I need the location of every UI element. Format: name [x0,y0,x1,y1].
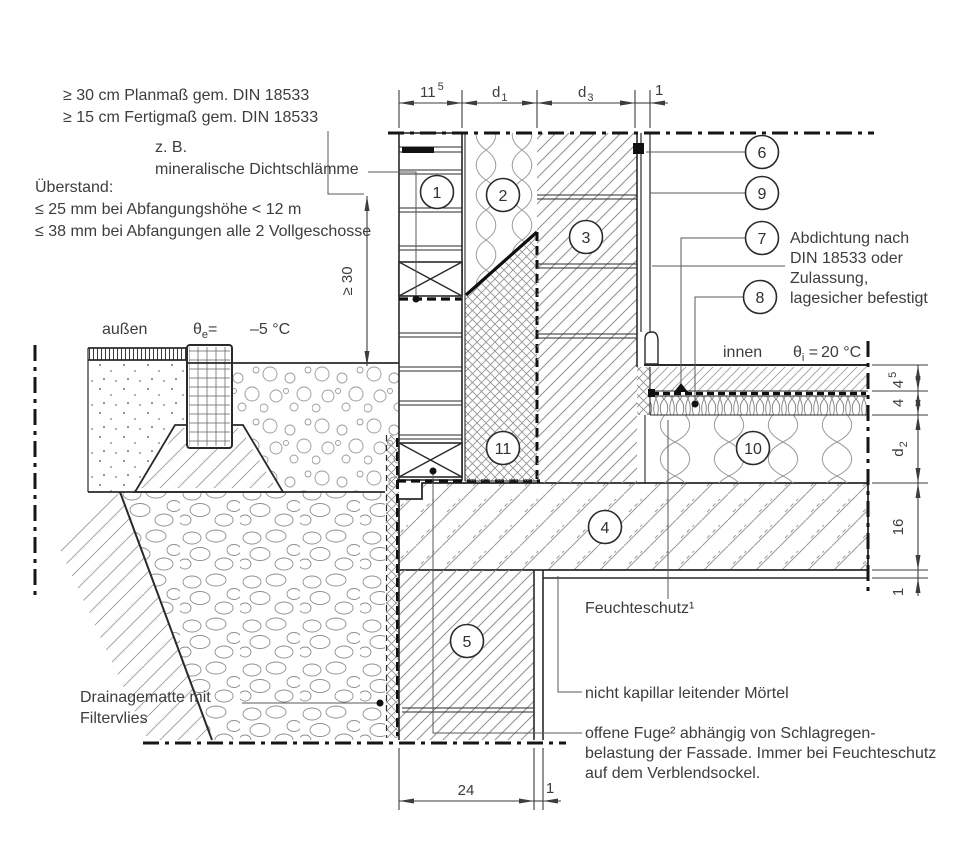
skirting-board [645,332,658,364]
callout7-leader [681,238,745,384]
callout-2: 2 [487,179,520,212]
dimension-top: 115 d1 d3 1 [399,81,668,128]
wall-masonry [537,133,637,483]
callout-7: 7 [746,222,779,255]
callout-6-num: 6 [758,145,767,162]
callout-11: 11 [487,432,520,465]
callout-9: 9 [746,177,779,210]
dim-right-label-2: 4 [890,399,907,407]
note-planmass-2: ≥ 15 cm Fertigmaß gem. DIN 18533 [63,109,318,126]
loadbearing-wall [537,133,658,483]
callout-1: 1 [421,176,454,209]
note-abdichtung-4: lagesicher befestigt [790,290,928,307]
dim-right-label-4: 16 [890,519,907,536]
note-drainage-2: Filtervlies [80,710,148,727]
dim-top-label-3: d3 [578,84,593,104]
callout-5-num: 5 [463,634,472,651]
callout-5: 5 [451,625,484,658]
callout-8-num: 8 [756,290,765,307]
dim-top-label-1: 115 [420,81,444,101]
temp-outside: außenθe=–5 °C [102,321,290,341]
note-drainage-1: Drainagematte mit [80,689,211,706]
note-abdichtung-1: Abdichtung nach [790,230,909,247]
surface-hash-strip [88,348,187,360]
detail-section-svg: 115 d1 d3 1 45 4 d2 16 1 24 1 ≥ 30 [0,0,960,841]
concrete-slab [399,483,868,570]
dim-bottom-label-1: 24 [458,782,475,799]
note-offene-fuge-2: belastung der Fassade. Immer bei Feuchte… [585,745,936,762]
interior-plaster-lines [641,133,650,332]
callout-1-num: 1 [433,185,442,202]
callout-10-num: 10 [744,441,762,458]
seal-floor-corner [648,389,655,397]
dim-bottom-label-2: 1 [546,780,554,797]
seal-top-block [633,143,644,154]
note-ueberstand-2: ≤ 25 mm bei Abfangungshöhe < 12 m [35,201,301,218]
dimension-bottom: 24 1 [399,748,561,810]
support-bracket [402,147,434,153]
dimension-right: 45 4 d2 16 1 [872,365,928,596]
note-offene-fuge-3: auf dem Verblendsockel. [585,765,760,782]
dim-right-extensions [872,365,928,578]
note-abdichtung-3: Zulassung, [790,270,868,287]
callout-3-num: 3 [582,230,591,247]
callout-3: 3 [570,221,603,254]
drainage-channel-grate [189,347,230,446]
note-planmass-1: ≥ 30 cm Planmaß gem. DIN 18533 [63,87,309,104]
note-moertel: nicht kapillar leitender Mörtel [585,685,789,702]
note-ueberstand-1: Überstand: [35,178,113,196]
temp-inside: innenθi =20 °C [723,344,861,364]
note-ueberstand-3: ≤ 38 mm bei Abfangungen alle 2 Vollgesch… [35,223,371,240]
dim-right-label-3: d2 [890,441,910,456]
dim-right-label-1: 45 [887,372,907,388]
exterior-ground [58,345,399,740]
note-feuchteschutz: Feuchteschutz¹ [585,600,694,617]
dim-top-label-2: d1 [492,84,507,104]
construction-detail-drawing: 115 d1 d3 1 45 4 d2 16 1 24 1 ≥ 30 [0,0,960,841]
moertel-leader [558,576,582,692]
note-dichtschlaemme-1: z. B. [155,139,187,156]
note-abdichtung-2: DIN 18533 oder [790,250,904,267]
callout-10: 10 [737,432,770,465]
dim-top-label-4: 1 [655,82,663,99]
impact-sound-insulation [650,396,868,415]
dim-height-label: ≥ 30 [339,266,356,295]
callout-6: 6 [746,136,779,169]
callout-4-num: 4 [601,520,610,537]
callout-7-num: 7 [758,231,767,248]
note-offene-fuge-1: offene Fuge² abhängig von Schlagregen- [585,725,876,742]
callout8-dot [692,401,699,408]
callout-9-num: 9 [758,186,767,203]
callout-11-num: 11 [495,441,512,458]
dichtschlaemme-dot [413,296,420,303]
floor-buildup [637,365,868,483]
dim-right-label-5: 1 [890,588,907,596]
dim-top-extensions [399,90,650,128]
note-dichtschlaemme-2: mineralische Dichtschlämme [155,161,359,178]
offene-fuge-dot [430,468,437,475]
callout-8: 8 [744,281,777,314]
callout-2-num: 2 [499,188,508,205]
callout-4: 4 [589,511,622,544]
drainage-dot [377,700,384,707]
